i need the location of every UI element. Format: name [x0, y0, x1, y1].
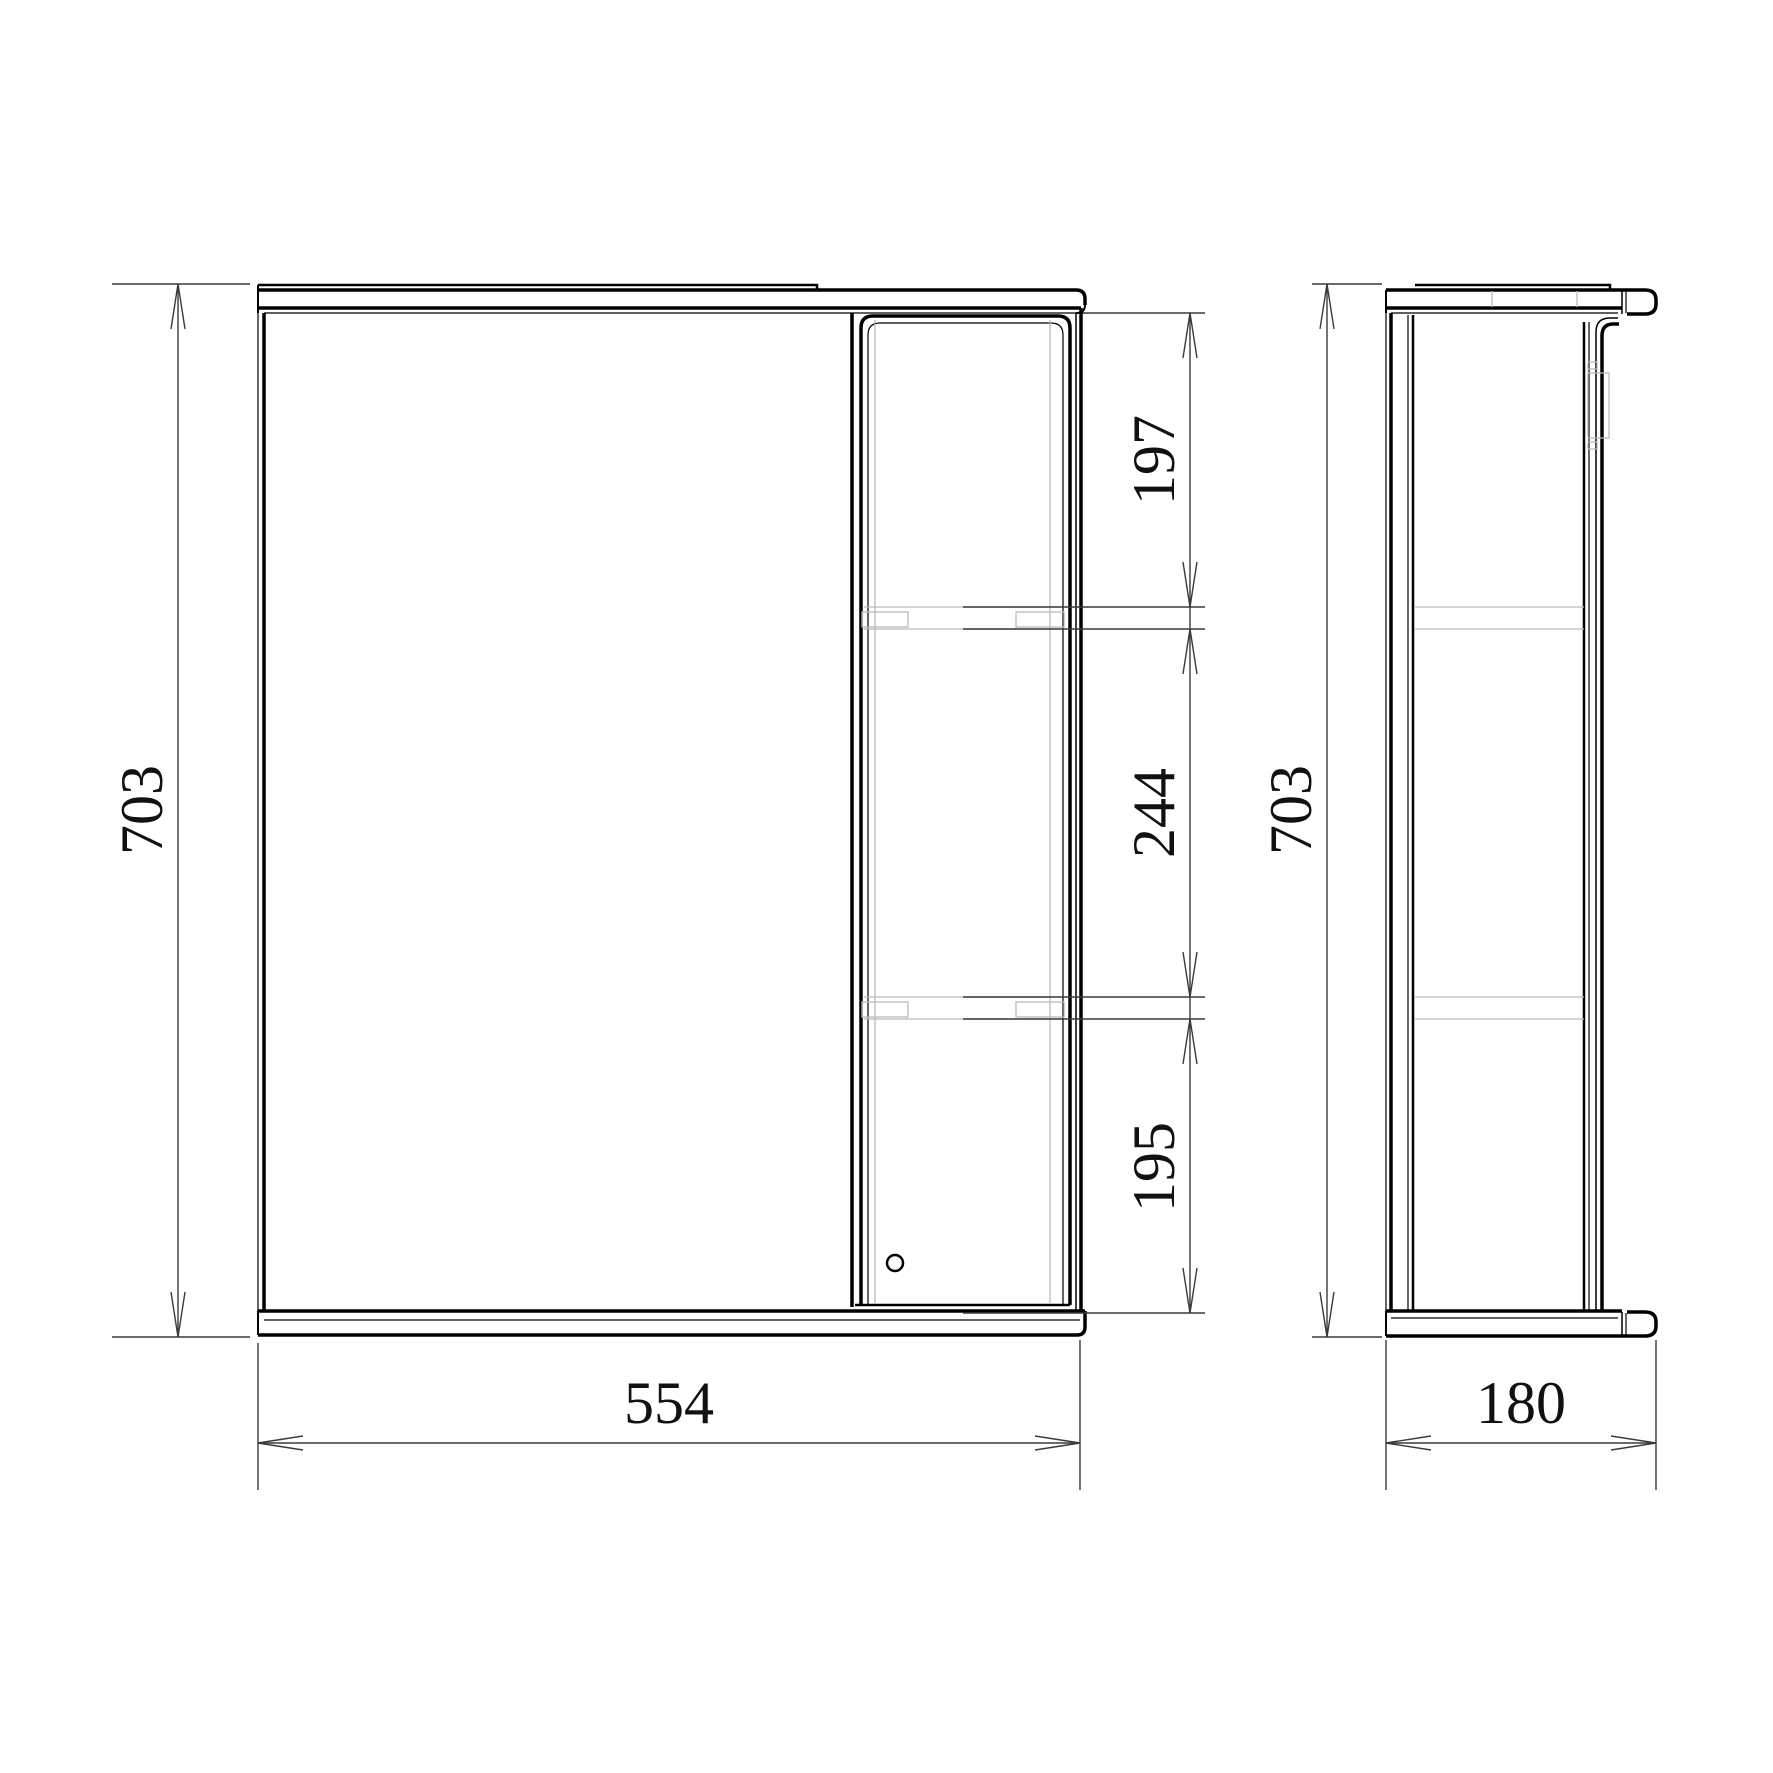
side-height-label: 703 — [1258, 765, 1324, 855]
side-body — [1386, 313, 1619, 1311]
door-profile — [1596, 318, 1618, 1310]
dim-front-width: 554 — [258, 1340, 1080, 1490]
door-knob — [887, 1255, 903, 1271]
dim-front-height: 703 — [109, 284, 250, 1337]
shelf-frame — [861, 316, 1070, 1305]
front-bottom-plate — [258, 1311, 1085, 1335]
shelf-1 — [862, 607, 1064, 629]
side-top-plate — [1386, 285, 1656, 314]
shelf-support — [1016, 612, 1064, 627]
technical-drawing-canvas: 703 554 197 244 195 703 — [0, 0, 1773, 1773]
shelf-middle-spacing-label: 244 — [1121, 768, 1187, 858]
shelf-column — [855, 308, 1081, 1311]
shelf-top-spacing-label: 197 — [1121, 415, 1187, 505]
shelf-2 — [862, 997, 1064, 1019]
front-view — [258, 285, 1085, 1335]
front-top-plate — [258, 285, 1085, 313]
mirror-panel — [258, 313, 852, 1311]
door-profile — [1602, 324, 1619, 1310]
side-view — [1386, 285, 1656, 1336]
shelf-support — [862, 612, 908, 627]
shelf-support — [862, 1002, 908, 1017]
dim-side-depth: 180 — [1386, 1340, 1656, 1490]
side-depth-label: 180 — [1476, 1370, 1566, 1436]
dim-side-height: 703 — [1258, 284, 1382, 1337]
front-width-label: 554 — [624, 1370, 714, 1436]
shelf-bottom-spacing-label: 195 — [1121, 1122, 1187, 1212]
shelf-support — [1016, 1002, 1064, 1017]
front-height-label: 703 — [109, 765, 175, 855]
side-bottom-plate — [1386, 1311, 1656, 1336]
hinge — [1588, 362, 1609, 449]
dim-shelf-spacing: 197 244 195 — [963, 313, 1205, 1313]
drawing-sheet: 703 554 197 244 195 703 — [0, 0, 1773, 1773]
